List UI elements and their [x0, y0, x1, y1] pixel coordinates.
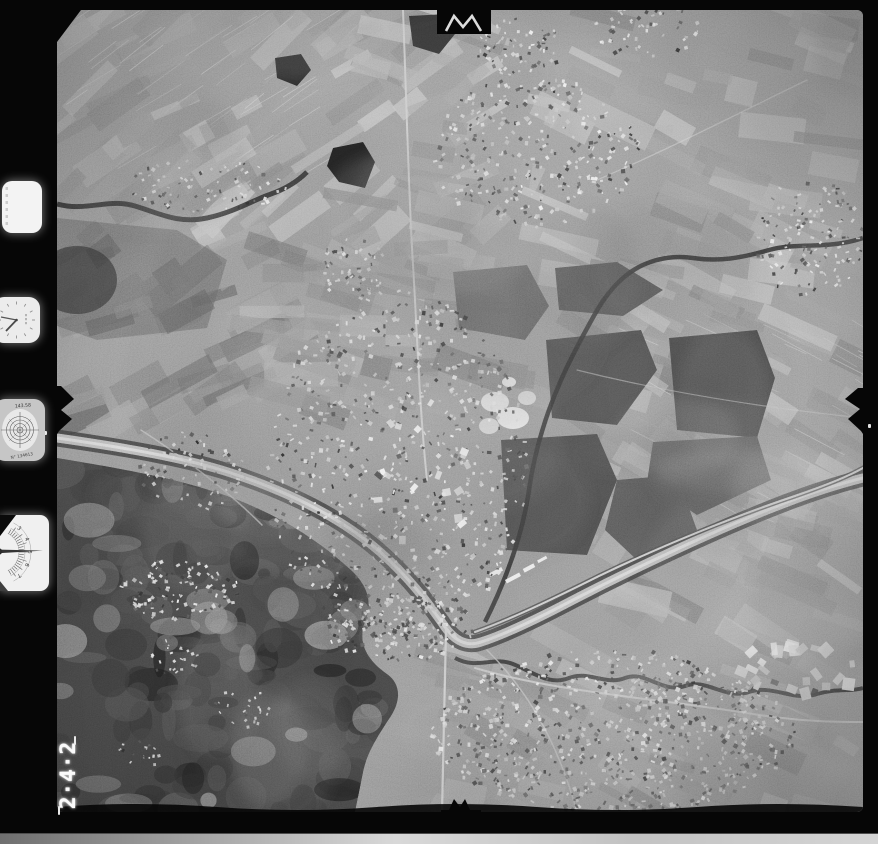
corner-cut-top-left: [57, 10, 81, 42]
vignette-overlay: [57, 10, 863, 812]
altimeter-dial: 3 4 5 6 7: [0, 512, 51, 594]
frame-number-label: 2·4·2: [50, 740, 86, 810]
film-scan-sheet: 143.58 N° 134613 3 4 5 6 7 2·4·2: [0, 0, 878, 844]
aerial-photograph: [57, 10, 863, 812]
collimation-target-dial: 143.58 N° 134613: [0, 397, 47, 465]
scanner-bed-strip: [0, 833, 878, 844]
clock-brand-marks: [25, 314, 27, 324]
mission-clock: [0, 291, 44, 349]
fiducial-notch-left: [56, 386, 76, 436]
clock-center-pin: [15, 319, 18, 322]
aerial-photo-canvas: [57, 10, 863, 812]
frame-edge-tick-bottom: [58, 806, 60, 815]
dust-speck-right: [868, 424, 871, 428]
frame-number-text: 2·4·2: [56, 741, 80, 809]
fiducial-notch-right: [843, 388, 863, 434]
target-top-reading: 143.58: [15, 402, 32, 409]
fiducial-notch-bottom: [441, 796, 481, 822]
frame-edge-tick-top: [74, 736, 76, 745]
fiducial-notch-top: [437, 0, 491, 35]
film-data-strip: [1, 180, 43, 234]
